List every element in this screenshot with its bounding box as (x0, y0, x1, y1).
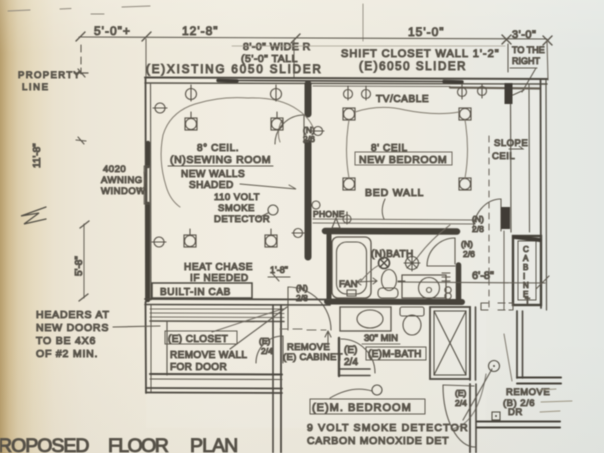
svg-text:TO BE 4X6: TO BE 4X6 (36, 335, 96, 347)
svg-text:PROPERTY: PROPERTY (18, 70, 81, 81)
svg-text:110 VOLT: 110 VOLT (214, 192, 260, 203)
svg-text:A: A (523, 254, 529, 263)
svg-text:NEW DOORS: NEW DOORS (36, 322, 109, 334)
svg-text:CEIL: CEIL (492, 151, 515, 162)
svg-text:(E): (E) (259, 336, 271, 346)
svg-text:FAN: FAN (339, 279, 358, 290)
svg-text:FLOOR: FLOOR (108, 435, 169, 453)
svg-text:PHONE: PHONE (313, 209, 345, 219)
svg-text:NEW WALLS: NEW WALLS (181, 169, 245, 180)
svg-text:(N)BATH: (N)BATH (371, 249, 414, 260)
svg-text:ROPOSED: ROPOSED (0, 435, 89, 453)
svg-text:AWNING: AWNING (101, 175, 143, 186)
svg-text:8° CEIL.: 8° CEIL. (197, 143, 239, 154)
svg-text:SHADED: SHADED (189, 180, 234, 191)
svg-text:TV/CABLE: TV/CABLE (376, 94, 429, 105)
svg-text:PLAN: PLAN (190, 435, 237, 453)
svg-text:(E)M-BATH: (E)M-BATH (368, 349, 422, 360)
svg-text:11'-8": 11'-8" (32, 143, 43, 168)
svg-text:2/6: 2/6 (303, 134, 315, 144)
svg-text:(E)XISTING 6050 SLIDER: (E)XISTING 6050 SLIDER (146, 64, 323, 76)
svg-text:(N): (N) (296, 283, 308, 293)
svg-text:BUILT-IN CAB: BUILT-IN CAB (160, 287, 231, 298)
svg-text:HEAT CHASE: HEAT CHASE (184, 262, 253, 273)
svg-text:OF #2 MIN.: OF #2 MIN. (36, 348, 98, 360)
svg-text:C: C (523, 245, 529, 254)
svg-text:DR: DR (508, 407, 523, 418)
svg-text:REMOVE: REMOVE (506, 387, 550, 398)
svg-text:(N): (N) (472, 214, 484, 224)
svg-text:T: T (525, 297, 530, 306)
svg-text:SLOPE: SLOPE (494, 138, 528, 149)
svg-text:3'-0": 3'-0" (512, 29, 536, 41)
svg-text:9 VOLT SMOKE DETECTOR: 9 VOLT SMOKE DETECTOR (307, 422, 469, 434)
svg-text:(E) CLOSET: (E) CLOSET (168, 334, 228, 345)
svg-text:NEW BEDROOM: NEW BEDROOM (359, 154, 447, 166)
svg-text:B: B (523, 263, 528, 272)
svg-text:5'-0"+: 5'-0"+ (94, 24, 131, 38)
svg-text:HEADERS AT: HEADERS AT (36, 309, 110, 321)
svg-text:4020: 4020 (103, 164, 126, 175)
svg-text:SMOKE: SMOKE (218, 203, 255, 214)
svg-text:(N): (N) (461, 239, 473, 249)
svg-text:SHIFT CLOSET WALL 1'-2": SHIFT CLOSET WALL 1'-2" (341, 48, 500, 60)
svg-text:6'-8": 6'-8" (472, 270, 494, 282)
svg-text:30" MIN: 30" MIN (364, 333, 398, 344)
svg-text:(E) CABINET: (E) CABINET (283, 352, 343, 363)
svg-text:15'-0": 15'-0" (408, 25, 445, 39)
svg-text:2/4: 2/4 (455, 398, 467, 408)
svg-text:12'-8": 12'-8" (182, 24, 219, 38)
svg-text:REMOVE WALL: REMOVE WALL (170, 350, 247, 361)
svg-text:5'-8": 5'-8" (74, 256, 85, 276)
svg-text:WINDOW: WINDOW (101, 186, 146, 197)
svg-text:FOR DOOR: FOR DOOR (170, 362, 227, 373)
svg-text:TO THE: TO THE (512, 45, 545, 55)
svg-text:2/8: 2/8 (296, 293, 308, 303)
svg-text:LINE: LINE (22, 82, 50, 93)
svg-text:(E)6050 SLIDER: (E)6050 SLIDER (359, 61, 467, 73)
svg-text:BED WALL: BED WALL (365, 187, 424, 199)
svg-text:CARBON MONOXIDE DET: CARBON MONOXIDE DET (307, 435, 449, 447)
svg-text:8'-0" WIDE R: 8'-0" WIDE R (243, 41, 311, 53)
svg-text:(E)M. BEDROOM: (E)M. BEDROOM (312, 402, 412, 414)
svg-text:(E): (E) (455, 388, 467, 398)
svg-text:I: I (523, 272, 525, 281)
svg-text:(N)SEWING ROOM: (N)SEWING ROOM (170, 154, 271, 166)
svg-text:(E): (E) (344, 345, 357, 356)
svg-text:2/6: 2/6 (463, 249, 475, 259)
svg-text:2/4: 2/4 (261, 346, 273, 356)
svg-text:RIGHT: RIGHT (512, 56, 541, 66)
svg-text:2/8: 2/8 (472, 224, 484, 234)
svg-text:2/4: 2/4 (344, 357, 358, 368)
